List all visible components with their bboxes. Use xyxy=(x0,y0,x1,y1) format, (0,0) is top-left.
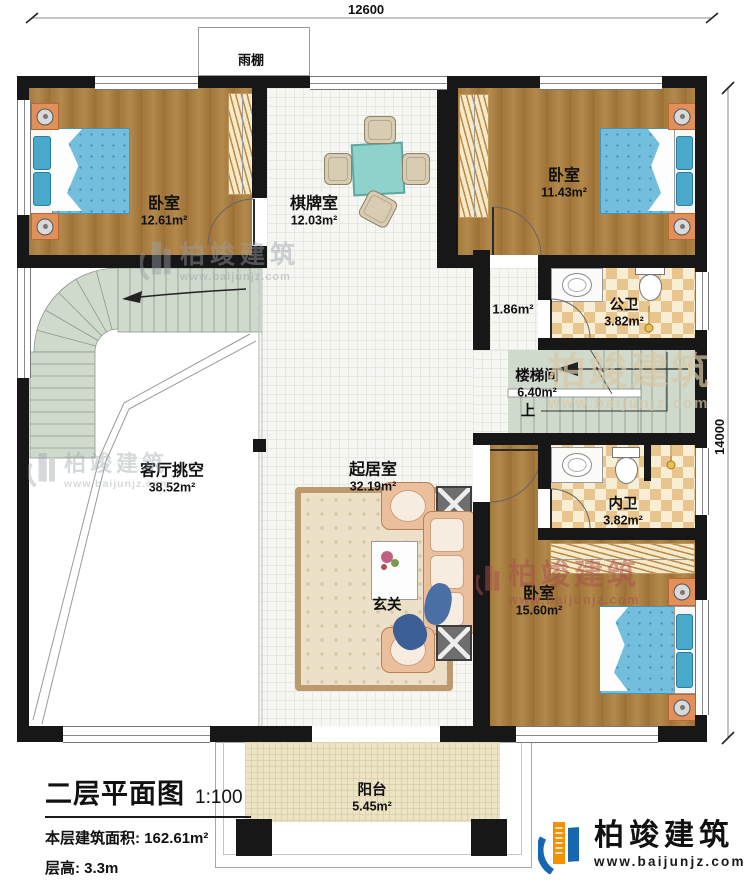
window xyxy=(695,600,709,715)
pillow xyxy=(676,652,693,688)
canopy-label: 雨棚 xyxy=(238,54,264,69)
pillow xyxy=(676,136,693,170)
interior-wall xyxy=(538,443,551,489)
window xyxy=(17,268,31,378)
interior-wall xyxy=(538,338,695,350)
lamp-icon xyxy=(674,584,691,601)
nightstand xyxy=(668,103,696,130)
window xyxy=(695,448,709,515)
room-label-balcony: 阳台 5.45m² xyxy=(352,782,392,813)
lamp-icon xyxy=(37,108,54,125)
plan-title-row: 二层平面图1:100 xyxy=(45,772,251,818)
brand-url: www.baijunjz.com xyxy=(594,854,746,869)
plan-title: 二层平面图 xyxy=(45,779,185,809)
sink xyxy=(562,453,592,477)
window xyxy=(310,76,447,90)
lamp-icon xyxy=(674,108,691,125)
window xyxy=(17,100,31,215)
room-label-public-bathroom: 公卫 3.82m² xyxy=(604,297,644,328)
balcony-door-opening xyxy=(312,726,440,742)
room-label-game-room: 棋牌室 12.03m² xyxy=(290,196,338,229)
living-void-floor xyxy=(29,268,258,726)
room-label-living-room: 起居室 32.19m² xyxy=(349,462,397,495)
dimension-right: 14000 xyxy=(712,419,727,455)
game-table xyxy=(351,142,406,197)
coffee-table xyxy=(371,541,418,600)
stair-up-label: 上 xyxy=(521,404,536,421)
lamp-icon xyxy=(37,218,54,235)
floor-area-line: 本层建筑面积: 162.61m² xyxy=(45,827,251,848)
title-block: 二层平面图1:100 本层建筑面积: 162.61m² 层高: 3.3m xyxy=(45,772,251,878)
nightstand xyxy=(668,694,696,721)
dimension-top: 12600 xyxy=(348,2,384,17)
room-label-bedroom-top-right: 卧室 11.43m² xyxy=(541,168,587,201)
lamp-icon xyxy=(674,218,691,235)
plan-scale: 1:100 xyxy=(195,787,243,808)
stair-landing-floor xyxy=(473,350,508,433)
pillow xyxy=(33,172,51,206)
floor-plan-canvas: 雨棚 xyxy=(0,0,750,889)
chair xyxy=(324,153,352,185)
lamp-icon xyxy=(674,699,691,716)
interior-wall xyxy=(473,250,490,350)
room-label-living-void: 客厅挑空 38.52m² xyxy=(140,463,204,496)
chair xyxy=(364,116,396,144)
window xyxy=(516,726,658,743)
nightstand xyxy=(31,103,59,130)
window xyxy=(63,726,210,743)
room-label-foyer: 玄关 xyxy=(373,598,402,615)
window xyxy=(540,76,662,90)
pillow xyxy=(676,614,693,650)
window xyxy=(695,272,709,330)
canopy-outline xyxy=(198,27,310,76)
interior-wall xyxy=(538,528,695,540)
room-label-bedroom-bottom-right: 卧室 15.60m² xyxy=(516,586,563,619)
closet xyxy=(228,93,255,195)
window xyxy=(95,76,198,90)
floor-height-line: 层高: 3.3m xyxy=(45,857,251,878)
interior-wall xyxy=(17,255,267,268)
interior-wall xyxy=(538,255,551,300)
room-label-hallway: 1.86m² xyxy=(492,303,533,318)
bedroom-hall-floor xyxy=(490,445,538,540)
sink xyxy=(562,273,592,297)
room-label-private-bathroom: 内卫 3.82m² xyxy=(603,496,643,527)
nightstand xyxy=(31,213,59,240)
pillow xyxy=(676,172,693,206)
interior-wall xyxy=(252,76,267,198)
bathroom-partition xyxy=(644,445,651,481)
end-table xyxy=(436,625,472,661)
room-label-bedroom-top-left: 卧室 12.61m² xyxy=(141,196,188,229)
closet xyxy=(459,94,489,218)
interior-wall xyxy=(473,502,490,726)
balcony-post-right xyxy=(471,819,507,856)
interior-wall xyxy=(542,255,695,268)
brand-name: 柏竣建筑 xyxy=(594,821,746,851)
interior-wall xyxy=(437,76,458,263)
void-edge-column xyxy=(253,439,266,452)
chair xyxy=(402,153,430,185)
flowers-decor xyxy=(381,551,393,563)
nightstand xyxy=(668,578,696,606)
brand-logo: 柏竣建筑 www.baijunjz.com xyxy=(538,816,746,874)
nightstand xyxy=(668,213,696,240)
interior-wall xyxy=(473,433,695,445)
room-label-stairwell: 楼梯间 6.40m² xyxy=(515,368,559,399)
brand-logo-icon xyxy=(538,816,586,874)
pillow xyxy=(33,136,51,170)
closet xyxy=(550,543,695,574)
